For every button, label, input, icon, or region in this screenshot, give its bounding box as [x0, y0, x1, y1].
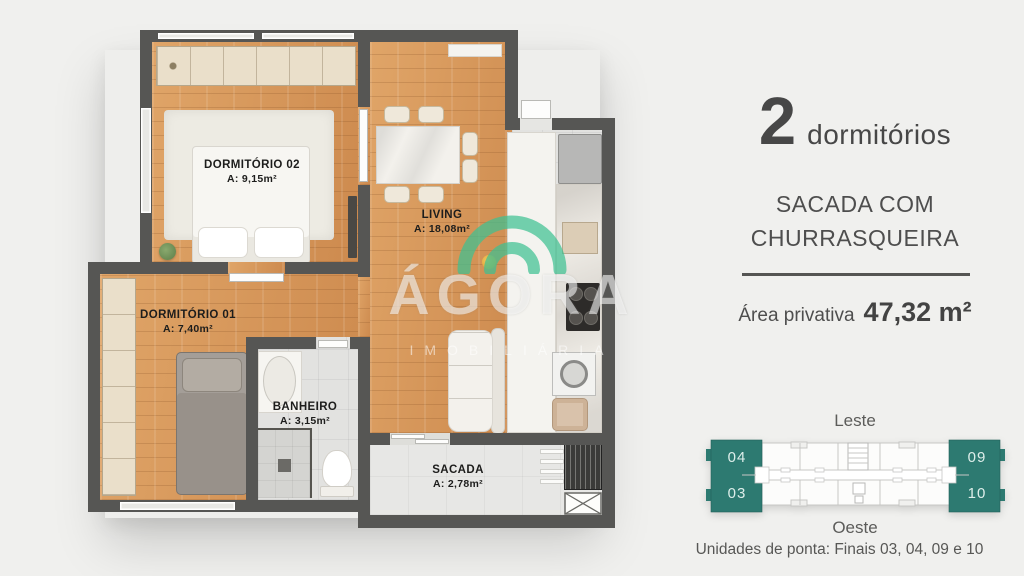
door-leaf-dorm2: [359, 109, 368, 182]
console-living: [448, 44, 502, 57]
room-name: LIVING: [422, 209, 463, 221]
bedrooms-count: 2: [759, 92, 796, 152]
building-footprint: [703, 433, 1008, 519]
wall-sacada-bottom: [358, 515, 615, 528]
churrasqueira-grill: [564, 443, 602, 490]
toilet-tank: [320, 486, 354, 497]
shower: [258, 428, 312, 498]
door-leaf-banheiro: [318, 340, 348, 348]
unit-number-03: 03: [712, 485, 762, 502]
grill-shelf-3: [540, 469, 564, 474]
room-area: A: 3,15m²: [280, 415, 330, 427]
duct-x-icon: [564, 492, 602, 515]
wardrobe-dorm2: [156, 46, 356, 86]
location-diagram: Leste: [655, 400, 1024, 576]
feature-text: SACADA COM CHURRASQUEIRA: [705, 187, 1005, 255]
bathroom-sink: [263, 356, 296, 406]
unit-number-04: 04: [712, 449, 762, 466]
room-area: A: 9,15m²: [227, 173, 277, 185]
dining-chair-5: [462, 132, 478, 156]
sofa: [448, 330, 493, 432]
grill-shelf-2: [540, 459, 564, 464]
tv-panel-dorm2: [348, 196, 357, 258]
corner-units-caption: Unidades de ponta: Finais 03, 04, 09 e 1…: [655, 541, 1024, 559]
shower-drain-icon: [278, 459, 291, 472]
single-bed-pillow: [182, 358, 242, 392]
room-name: DORMITÓRIO 02: [204, 159, 300, 171]
area-value: 47,32 m²: [864, 297, 972, 328]
fridge: [558, 134, 602, 184]
microwave: [562, 222, 598, 254]
wall-dorm2-living-b: [358, 185, 370, 277]
room-area: A: 18,08m²: [414, 223, 470, 235]
floorplan: DORMITÓRIO 02 A: 9,15m² DORMITÓRIO 01 A:…: [0, 0, 660, 576]
door-opening-entrance: [520, 118, 552, 130]
divider-line: [742, 273, 970, 276]
plant-dorm2: [159, 243, 176, 260]
wall-living-right-upper: [505, 30, 518, 130]
room-label-sacada: SACADA A: 2,78m²: [432, 464, 484, 490]
dining-chair-2: [418, 106, 444, 123]
pillow-right: [254, 227, 304, 258]
bedrooms-headline: 2 dormitórios: [705, 92, 1005, 152]
window-dorm2-top-1: [158, 33, 254, 39]
door-leaf-entrance: [521, 100, 551, 119]
room-name: DORMITÓRIO 01: [140, 309, 236, 321]
window-dorm2-top-2: [262, 33, 354, 39]
door-leaf-dorm1: [229, 273, 284, 282]
dining-chair-1: [384, 106, 410, 123]
info-panel: 2 dormitórios SACADA COM CHURRASQUEIRA Á…: [700, 0, 1010, 400]
window-dorm2-left: [141, 108, 151, 213]
burner-icon: [569, 287, 583, 301]
grill-shelf-4: [540, 479, 564, 484]
burner-icon: [584, 287, 598, 301]
wall-right: [602, 118, 615, 528]
room-area: A: 2,78m²: [433, 478, 483, 490]
room-label-living: LIVING A: 18,08m²: [414, 209, 470, 235]
floor-hall-passage: [358, 277, 370, 337]
room-label-dorm1: DORMITÓRIO 01 A: 7,40m²: [140, 309, 236, 335]
room-label-banheiro: BANHEIRO A: 3,15m²: [273, 401, 338, 427]
area-label: Área privativa: [738, 305, 854, 327]
dining-chair-4: [418, 186, 444, 203]
dining-table: [376, 126, 460, 184]
burner-icon: [584, 311, 598, 325]
toilet: [322, 450, 352, 488]
room-label-dorm2: DORMITÓRIO 02 A: 9,15m²: [204, 159, 300, 185]
burner-icon: [569, 311, 583, 325]
wardrobe-dorm1: [102, 278, 136, 496]
door-leaf-balcony-slider2: [415, 439, 449, 444]
dining-chair-3: [384, 186, 410, 203]
window-dorm1-bottom: [120, 502, 235, 510]
laundry-sink: [552, 398, 588, 431]
wall-dorm2-living-a: [358, 30, 370, 107]
sofa-back: [491, 328, 505, 434]
screenshot-root: DORMITÓRIO 02 A: 9,15m² DORMITÓRIO 01 A:…: [0, 0, 1024, 576]
room-name: SACADA: [432, 464, 484, 476]
east-label: Leste: [705, 411, 1005, 431]
private-area: Área privativa 47,32 m²: [705, 297, 1005, 328]
dining-chair-6: [462, 159, 478, 183]
washer-drum-icon: [560, 360, 588, 388]
room-name: BANHEIRO: [273, 401, 338, 413]
bedrooms-word: dormitórios: [807, 119, 951, 151]
stove: [566, 283, 600, 331]
west-label: Oeste: [705, 518, 1005, 538]
kitchen-island-counter: [507, 132, 556, 433]
feature-line1: SACADA COM: [705, 187, 1005, 221]
feature-line2: CHURRASQUEIRA: [705, 221, 1005, 255]
grill-shelf-1: [540, 449, 564, 454]
pillow-left: [198, 227, 248, 258]
room-area: A: 7,40m²: [163, 323, 213, 335]
wall-banheiro-left: [246, 337, 258, 512]
flower-vase: [482, 255, 496, 269]
unit-number-10: 10: [952, 485, 1002, 502]
washing-machine: [552, 352, 596, 396]
unit-number-09: 09: [952, 449, 1002, 466]
wall-dorm1-left: [88, 262, 100, 512]
